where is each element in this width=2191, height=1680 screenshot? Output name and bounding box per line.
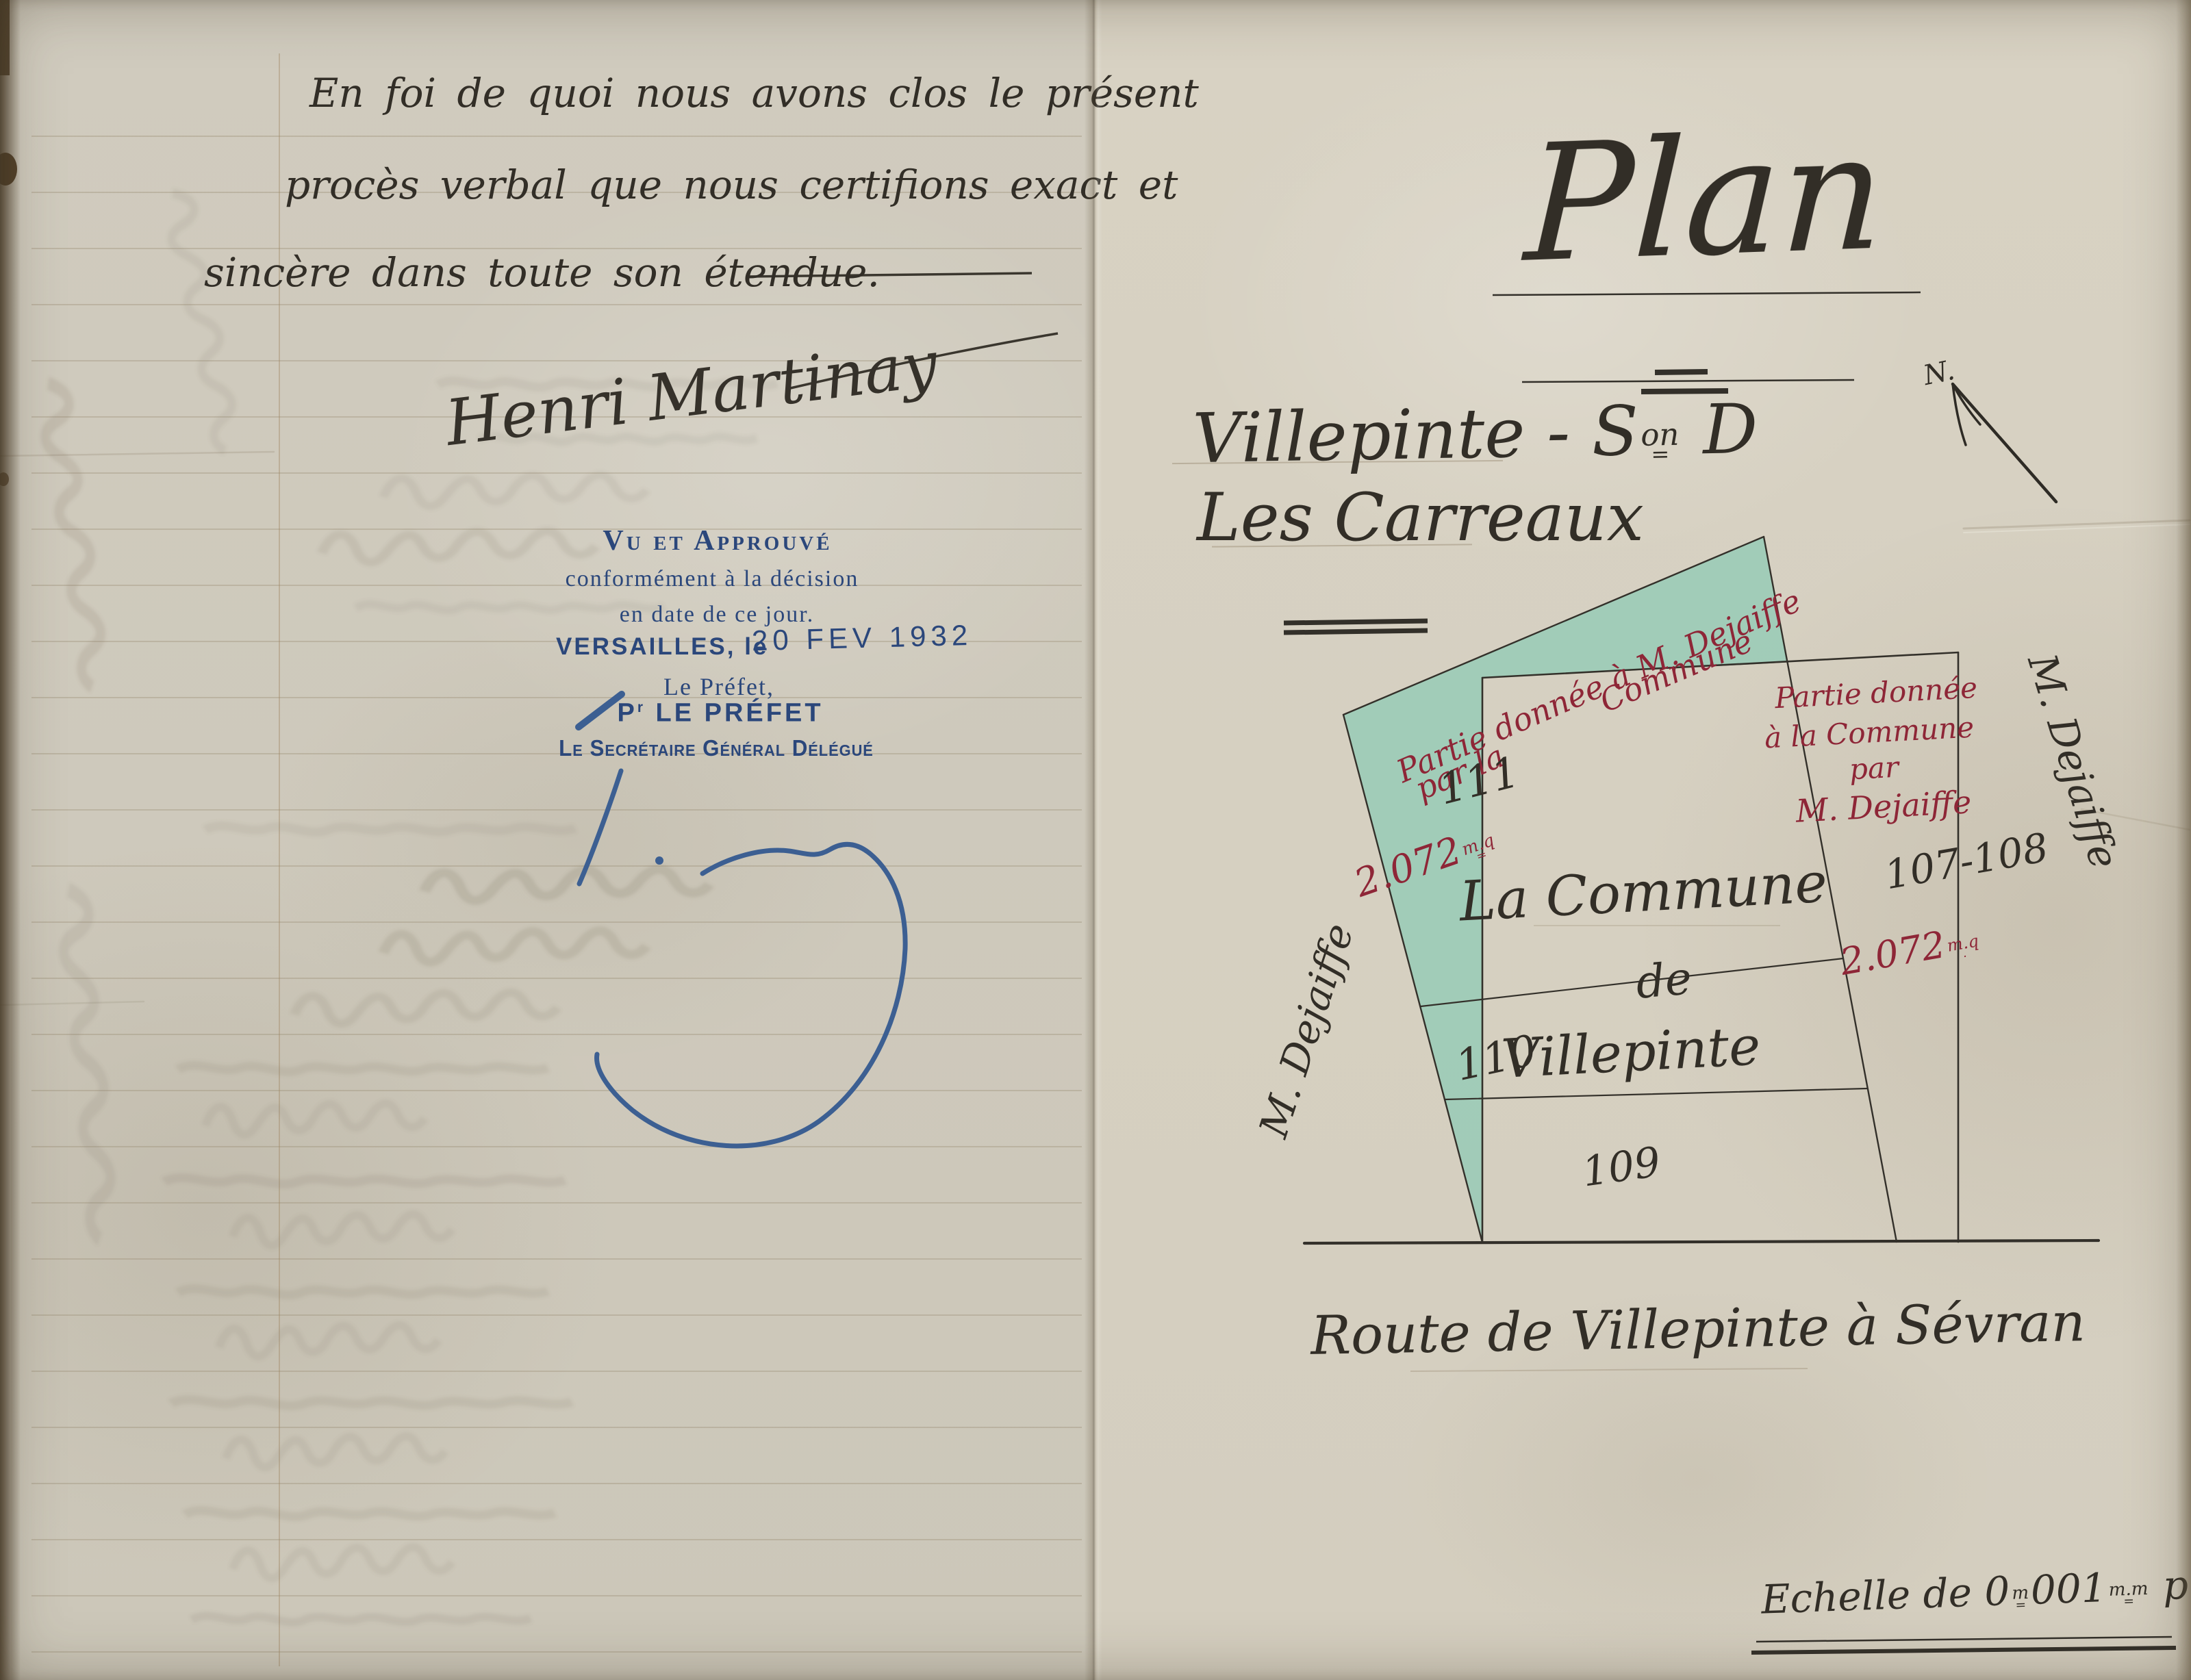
stamp-secretary: Le Secrétaire Général Délégué	[559, 735, 874, 761]
plan-title: Plan	[1522, 99, 1888, 298]
photo-edge-right	[2176, 0, 2191, 1680]
owner-label-line-2: de	[1634, 952, 1694, 1009]
stamp-pour-rest: LE PRÉFET	[646, 699, 824, 728]
section-pre: Villepinte - S	[1192, 391, 1639, 479]
stamp-prefet: Le Préfet,	[663, 672, 774, 701]
north-label: N.	[1921, 355, 1958, 392]
closing-paragraph-line-2: procès verbal que nous certifions exact …	[285, 162, 1178, 208]
right-note-line-3: par	[1849, 750, 1899, 787]
stamp-date: 20 FEV 1932	[751, 619, 972, 657]
scale-sup-1-underline: =	[2015, 1601, 2026, 1610]
photo-edge-left	[0, 0, 21, 1680]
stamp-pour-le-prefet: Pr LE PRÉFET	[617, 699, 823, 728]
scale-mid: 001	[2030, 1564, 2107, 1614]
scanned-document: En foi de quoi nous avons clos le présen…	[0, 0, 2191, 1680]
lieu-dit-title: Les Carreaux	[1197, 479, 1644, 556]
closing-paragraph-line-3: sincère dans toute son étendue.	[204, 249, 880, 296]
stamp-pour-sup: r	[637, 700, 646, 715]
scale-pre: Echelle de 0	[1760, 1568, 2010, 1623]
section-post: D	[1680, 389, 1758, 470]
stamp-approved: Vu et Approuvé	[603, 524, 832, 557]
stamp-place: VERSAILLES, le	[556, 633, 768, 661]
blue-signature-scribble	[579, 694, 905, 1146]
section-title: Villepinte - Son= D	[1192, 389, 1758, 479]
closing-paragraph-line-1: En foi de quoi nous avons clos le présen…	[309, 70, 1199, 116]
north-arrow-icon	[1953, 384, 2056, 502]
scale-sup-2-underline: =	[2123, 1596, 2134, 1606]
section-sup-underline: =	[1651, 446, 1669, 462]
stamp-pour-p: P	[617, 699, 637, 728]
stamp-line-2: conformément à la décision	[566, 566, 859, 592]
